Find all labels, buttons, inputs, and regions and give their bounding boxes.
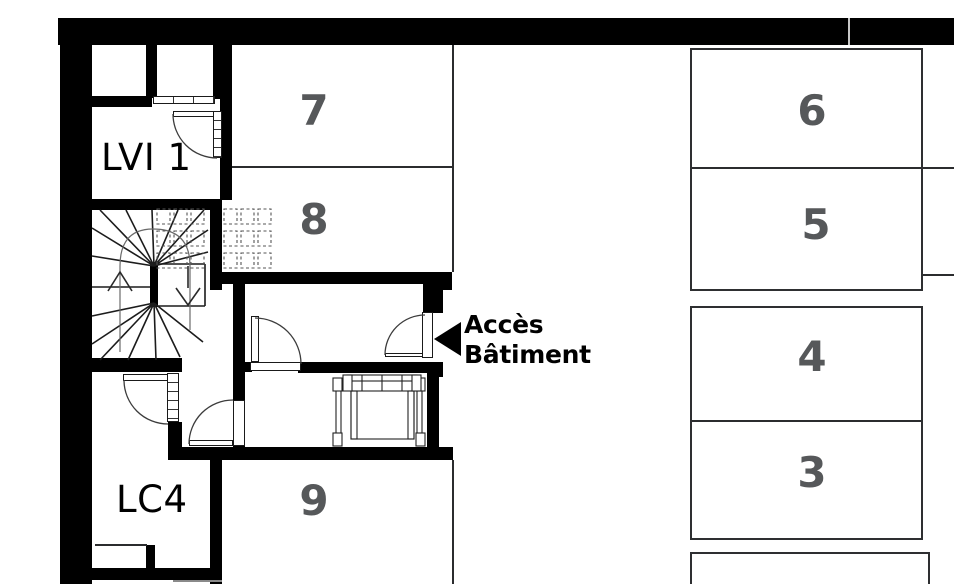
boundary-right-upper bbox=[452, 45, 454, 272]
vestibule-door-leaf bbox=[251, 316, 259, 362]
parking-space-7-label: 7 bbox=[299, 90, 328, 132]
entrance-door-arc bbox=[385, 315, 425, 355]
wall-room8-bottom bbox=[210, 272, 452, 284]
wall-entrance-top bbox=[423, 284, 443, 313]
parking-box-lower bbox=[690, 552, 930, 584]
wall-vestibule-left bbox=[233, 284, 245, 400]
elevator-door-leaf bbox=[233, 400, 245, 446]
boundary-right-lower bbox=[452, 460, 454, 584]
parking-space-8-label: 8 bbox=[299, 199, 328, 241]
wall-stair-top bbox=[86, 199, 222, 210]
parking-space-3-label: 3 bbox=[797, 452, 826, 494]
vestibule-door-arc bbox=[255, 318, 301, 364]
parking-space-5-label: 5 bbox=[801, 204, 830, 246]
access-label-line2: Bâtiment bbox=[464, 340, 591, 370]
lc4-inner-line bbox=[95, 544, 147, 546]
entrance-door-leaf bbox=[422, 312, 433, 358]
wall-joint bbox=[848, 18, 850, 45]
bottom-partial-line bbox=[173, 580, 222, 582]
wall-vestibule-bottom bbox=[298, 362, 443, 373]
stair-up-arrow bbox=[108, 272, 132, 291]
wall-closet-bottom bbox=[86, 96, 152, 107]
entrance-threshold bbox=[385, 353, 423, 357]
stair-down-arrow bbox=[176, 288, 200, 305]
elevator-door-arc bbox=[189, 400, 233, 444]
staircase bbox=[92, 210, 208, 360]
access-arrow-icon bbox=[434, 322, 461, 356]
access-batiment-label: Accès Bâtiment bbox=[464, 310, 591, 370]
shelf bbox=[153, 96, 215, 104]
wall-closet-divider bbox=[146, 45, 157, 98]
wall-lvi1-right-upper bbox=[213, 45, 232, 99]
wall-stair-bottom bbox=[90, 358, 182, 372]
elevator-symbol bbox=[333, 375, 425, 446]
room-label-lvi1: LVI 1 bbox=[101, 139, 192, 176]
parking-space-4-label: 4 bbox=[797, 336, 826, 378]
wall-lc4-stub bbox=[146, 545, 155, 570]
room-label-lc4: LC4 bbox=[116, 481, 188, 518]
edge-line-right bbox=[923, 274, 954, 276]
wall-top bbox=[58, 18, 954, 45]
lc4-door-frame bbox=[123, 374, 168, 381]
parking-box-6-5 bbox=[690, 48, 923, 291]
access-label-line1: Accès bbox=[464, 310, 591, 340]
lvi1-door-closed bbox=[173, 111, 216, 117]
wall-elevator-right bbox=[427, 373, 439, 448]
floor-plan: LVI 1 LC4 Accès Bâtiment 7 8 9 6 5 4 3 bbox=[0, 0, 954, 584]
lc4-door-leaf bbox=[167, 373, 179, 422]
parking-space-9-label: 9 bbox=[299, 480, 328, 522]
wall-lc4-right bbox=[210, 459, 222, 584]
vestibule-door-threshold bbox=[250, 362, 301, 371]
lvi1-door-leaf bbox=[213, 111, 222, 158]
divider-bay7-bay8 bbox=[232, 166, 453, 168]
lc4-door-arc bbox=[124, 380, 168, 424]
elevator-door-threshold bbox=[189, 440, 233, 446]
parking-space-6-label: 6 bbox=[797, 90, 826, 132]
